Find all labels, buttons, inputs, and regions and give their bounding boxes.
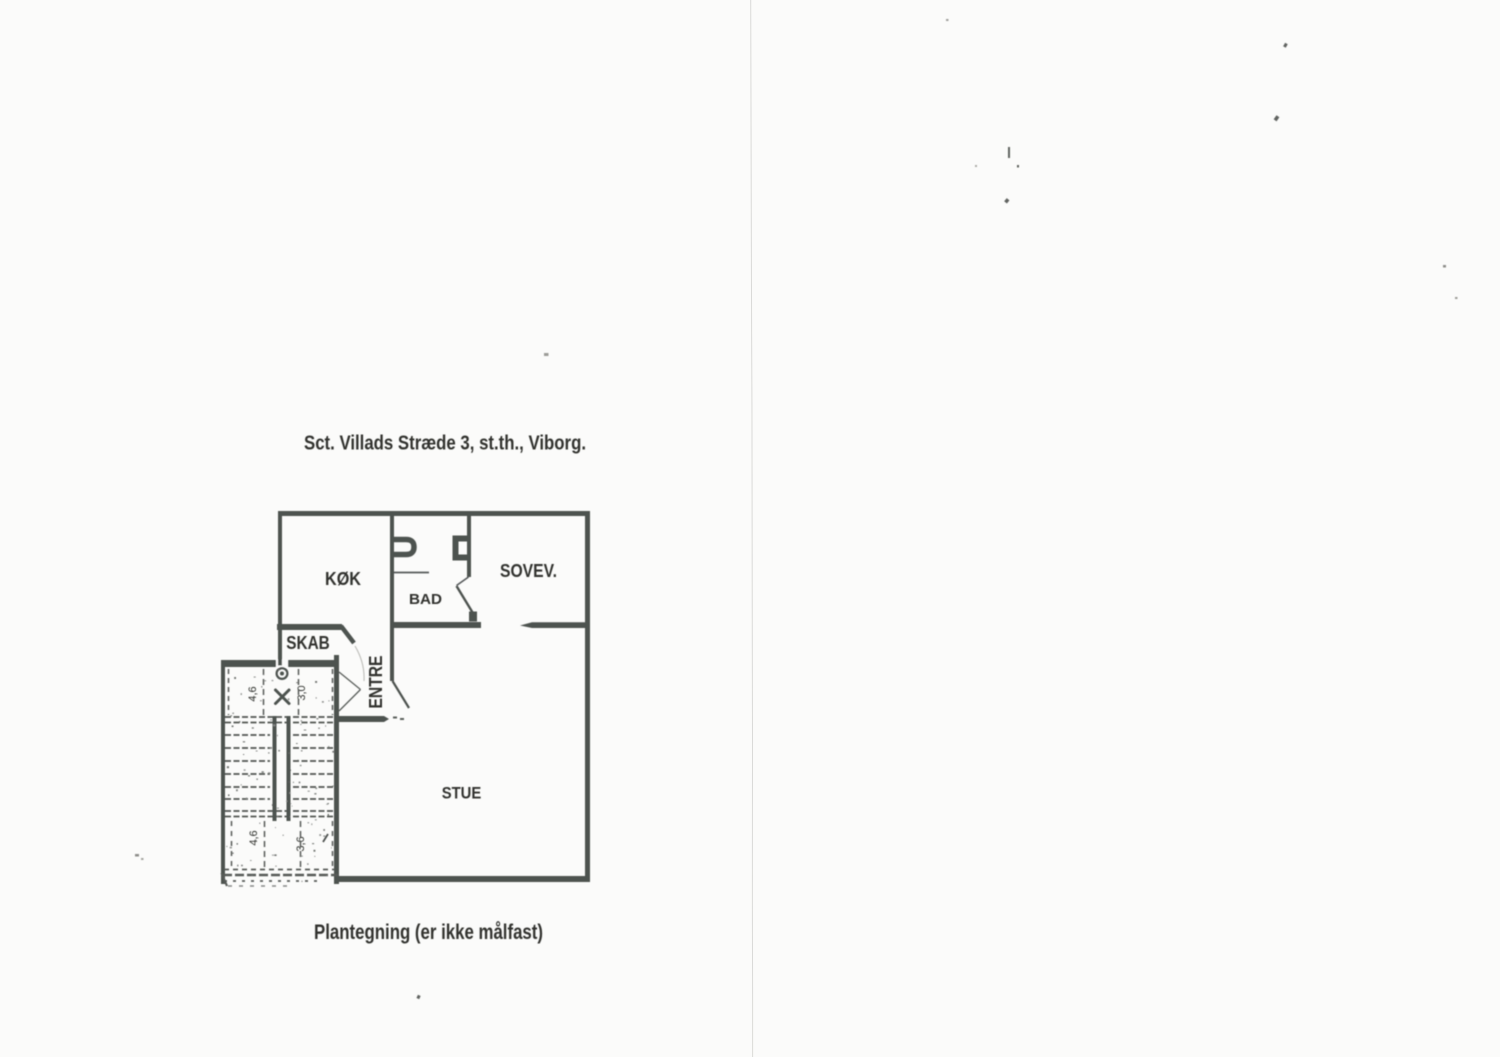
svg-text:SOVEV.: SOVEV. <box>500 561 557 581</box>
svg-text:ENTRE: ENTRE <box>366 656 386 709</box>
svg-text:Plantegning (er ikke målfast): Plantegning (er ikke målfast) <box>314 921 543 944</box>
svg-text:BAD: BAD <box>409 592 442 608</box>
svg-text:4,6: 4,6 <box>247 686 259 701</box>
svg-text:4,6: 4,6 <box>248 830 260 845</box>
svg-text:SKAB: SKAB <box>286 632 330 653</box>
svg-text:KØK: KØK <box>325 568 362 589</box>
svg-text:STUE: STUE <box>442 784 482 803</box>
svg-text:Sct. Villads Stræde 3, st.th.,: Sct. Villads Stræde 3, st.th., Viborg. <box>304 433 586 455</box>
